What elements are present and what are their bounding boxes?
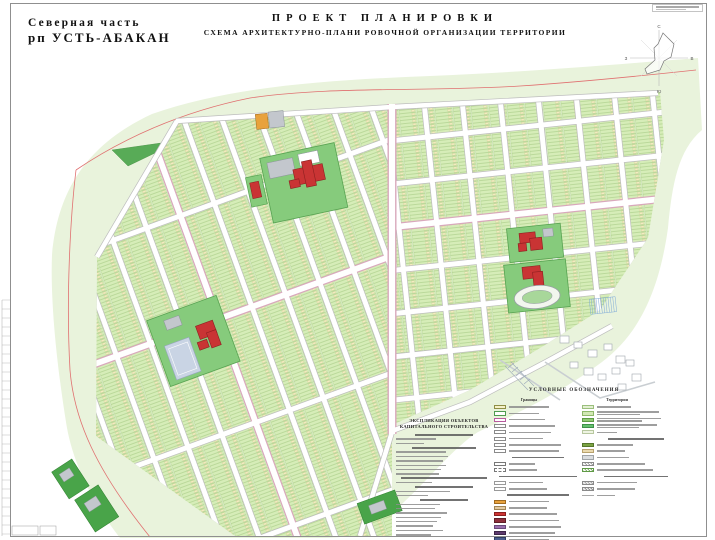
compass-west-label: З bbox=[625, 56, 628, 61]
header-text-bar bbox=[512, 457, 564, 459]
legend-swatch bbox=[582, 443, 594, 447]
legend-column-territories: Территории bbox=[582, 397, 690, 540]
label-text-bar bbox=[509, 469, 537, 471]
label-text-bar bbox=[509, 526, 561, 528]
legend-swatch bbox=[494, 512, 506, 516]
header-text-bar bbox=[608, 438, 664, 440]
label-text-bar bbox=[509, 450, 559, 452]
header-text-bar bbox=[604, 476, 668, 478]
label-text-bar bbox=[509, 520, 559, 522]
label-text-bar bbox=[509, 507, 547, 509]
project-title-line2: СХЕМА АРХИТЕКТУРНО-ПЛАНИ РОВОЧНОЙ ОРГАНИ… bbox=[170, 28, 600, 37]
legend-swatch bbox=[582, 424, 594, 428]
legend-swatch bbox=[582, 487, 594, 491]
area-title-line2: рп УСТЬ-АБАКАН bbox=[28, 30, 171, 46]
legend-swatch bbox=[582, 449, 594, 453]
legend-swatch bbox=[494, 424, 506, 428]
label-text-bar bbox=[509, 425, 555, 427]
label-text-bar bbox=[396, 482, 432, 484]
legend-swatch bbox=[582, 455, 594, 459]
compass-north-label: С bbox=[657, 24, 661, 29]
legend-title: УСЛОВНЫЕ ОБОЗНАЧЕНИЯ bbox=[494, 388, 654, 393]
legend-swatch bbox=[582, 481, 594, 485]
explication-title-line2: КАПИТАЛЬНОГО СТРОИТЕЛЬСТВА bbox=[388, 424, 500, 430]
label-text-bar bbox=[509, 406, 549, 408]
header-text-bar bbox=[507, 494, 569, 496]
stadium-block-east bbox=[504, 259, 571, 313]
label-text-bar bbox=[597, 488, 635, 490]
label-text-bar bbox=[597, 418, 661, 422]
label-text-bar bbox=[597, 424, 657, 428]
school-block-east bbox=[506, 223, 563, 262]
plan-sheet: С Ю З В Северная часть рп УСТЬ-АБАКАН ПР… bbox=[0, 0, 715, 540]
legend-swatch bbox=[582, 418, 594, 422]
legend-swatch bbox=[494, 525, 506, 529]
legend-swatch bbox=[582, 468, 594, 472]
legend-column-territories-header: Территории bbox=[582, 397, 652, 404]
legend-swatch bbox=[494, 449, 506, 453]
sheet-corner-note bbox=[652, 4, 703, 12]
label-text-bar bbox=[396, 517, 441, 519]
ex-row bbox=[388, 533, 500, 537]
legend-swatch bbox=[494, 462, 506, 466]
lg-row bbox=[494, 536, 582, 540]
label-text-bar bbox=[597, 482, 637, 484]
label-text-bar bbox=[509, 438, 543, 440]
label-text-bar bbox=[396, 530, 443, 532]
label-text-bar bbox=[597, 432, 617, 434]
label-text-bar bbox=[509, 532, 555, 534]
compass-south-label: Ю bbox=[657, 89, 662, 94]
label-text-bar bbox=[396, 521, 437, 523]
label-text-bar bbox=[597, 444, 633, 446]
legend-swatch bbox=[494, 481, 506, 485]
label-text-bar bbox=[509, 513, 557, 515]
label-text-bar bbox=[396, 438, 436, 440]
label-text-bar bbox=[509, 482, 543, 484]
legend-swatch bbox=[494, 518, 506, 522]
label-text-bar bbox=[597, 457, 629, 459]
legend-swatch bbox=[582, 495, 594, 496]
label-text-bar bbox=[396, 504, 440, 506]
legend-swatch bbox=[582, 430, 594, 434]
legend-swatch bbox=[494, 500, 506, 504]
legend-swatch bbox=[494, 506, 506, 510]
explication-block: ЭКСПЛИКАЦИЯ ОБЪЕКТОВ КАПИТАЛЬНОГО СТРОИТ… bbox=[388, 418, 500, 537]
legend-swatch bbox=[494, 468, 506, 472]
label-text-bar bbox=[396, 473, 439, 475]
label-text-bar bbox=[509, 419, 545, 421]
legend-swatch bbox=[494, 487, 506, 491]
legend-swatch bbox=[582, 411, 594, 415]
legend-swatch bbox=[494, 405, 506, 409]
legend-column-boundaries-header: Границы bbox=[494, 397, 564, 404]
header-text-bar bbox=[401, 477, 487, 479]
area-title: Северная часть рп УСТЬ-АБАКАН bbox=[28, 16, 171, 47]
label-text-bar bbox=[597, 495, 615, 497]
header-text-bar bbox=[415, 434, 473, 436]
label-text-bar bbox=[396, 451, 446, 453]
project-title: ПРОЕКТ ПЛАНИРОВКИ СХЕМА АРХИТЕКТУРНО-ПЛА… bbox=[170, 13, 600, 37]
legend-swatch bbox=[494, 411, 506, 415]
label-text-bar bbox=[597, 411, 659, 415]
label-text-bar bbox=[396, 460, 443, 462]
header-text-bar bbox=[412, 447, 476, 449]
label-text-bar bbox=[396, 512, 447, 514]
compass-east-label: В bbox=[690, 56, 693, 61]
label-text-bar bbox=[597, 450, 625, 452]
label-text-bar bbox=[509, 413, 539, 415]
label-text-bar bbox=[597, 406, 631, 408]
header-text-bar bbox=[420, 499, 468, 501]
legend-swatch bbox=[494, 430, 506, 434]
label-text-bar bbox=[597, 469, 653, 471]
label-text-bar bbox=[396, 443, 424, 445]
label-text-bar bbox=[396, 534, 431, 536]
header-text-bar bbox=[415, 486, 473, 488]
legend-column-boundaries: Границы bbox=[494, 397, 582, 540]
label-text-bar bbox=[509, 463, 535, 465]
label-text-bar bbox=[396, 456, 448, 458]
label-text-bar bbox=[396, 491, 450, 493]
area-title-line1: Северная часть bbox=[28, 16, 171, 30]
legend-swatch bbox=[494, 531, 506, 535]
label-text-bar bbox=[597, 463, 645, 465]
legend-swatch bbox=[494, 437, 506, 441]
explication-rows bbox=[388, 433, 500, 537]
label-text-bar bbox=[396, 465, 446, 467]
legend-swatch bbox=[494, 418, 506, 422]
label-text-bar bbox=[509, 488, 547, 490]
header-text-bar bbox=[499, 476, 577, 478]
label-text-bar bbox=[396, 508, 435, 510]
map-legend: УСЛОВНЫЕ ОБОЗНАЧЕНИЯ Границы Территории bbox=[494, 388, 690, 540]
label-text-bar bbox=[396, 469, 441, 471]
project-title-line1: ПРОЕКТ ПЛАНИРОВКИ bbox=[170, 13, 600, 24]
label-text-bar bbox=[396, 525, 433, 527]
legend-swatch bbox=[494, 443, 506, 447]
legend-swatch bbox=[582, 405, 594, 409]
label-text-bar bbox=[509, 501, 549, 503]
label-text-bar bbox=[509, 444, 561, 446]
legend-swatch bbox=[582, 462, 594, 466]
label-text-bar bbox=[396, 495, 428, 497]
lg-row bbox=[582, 492, 690, 498]
label-text-bar bbox=[509, 432, 551, 434]
